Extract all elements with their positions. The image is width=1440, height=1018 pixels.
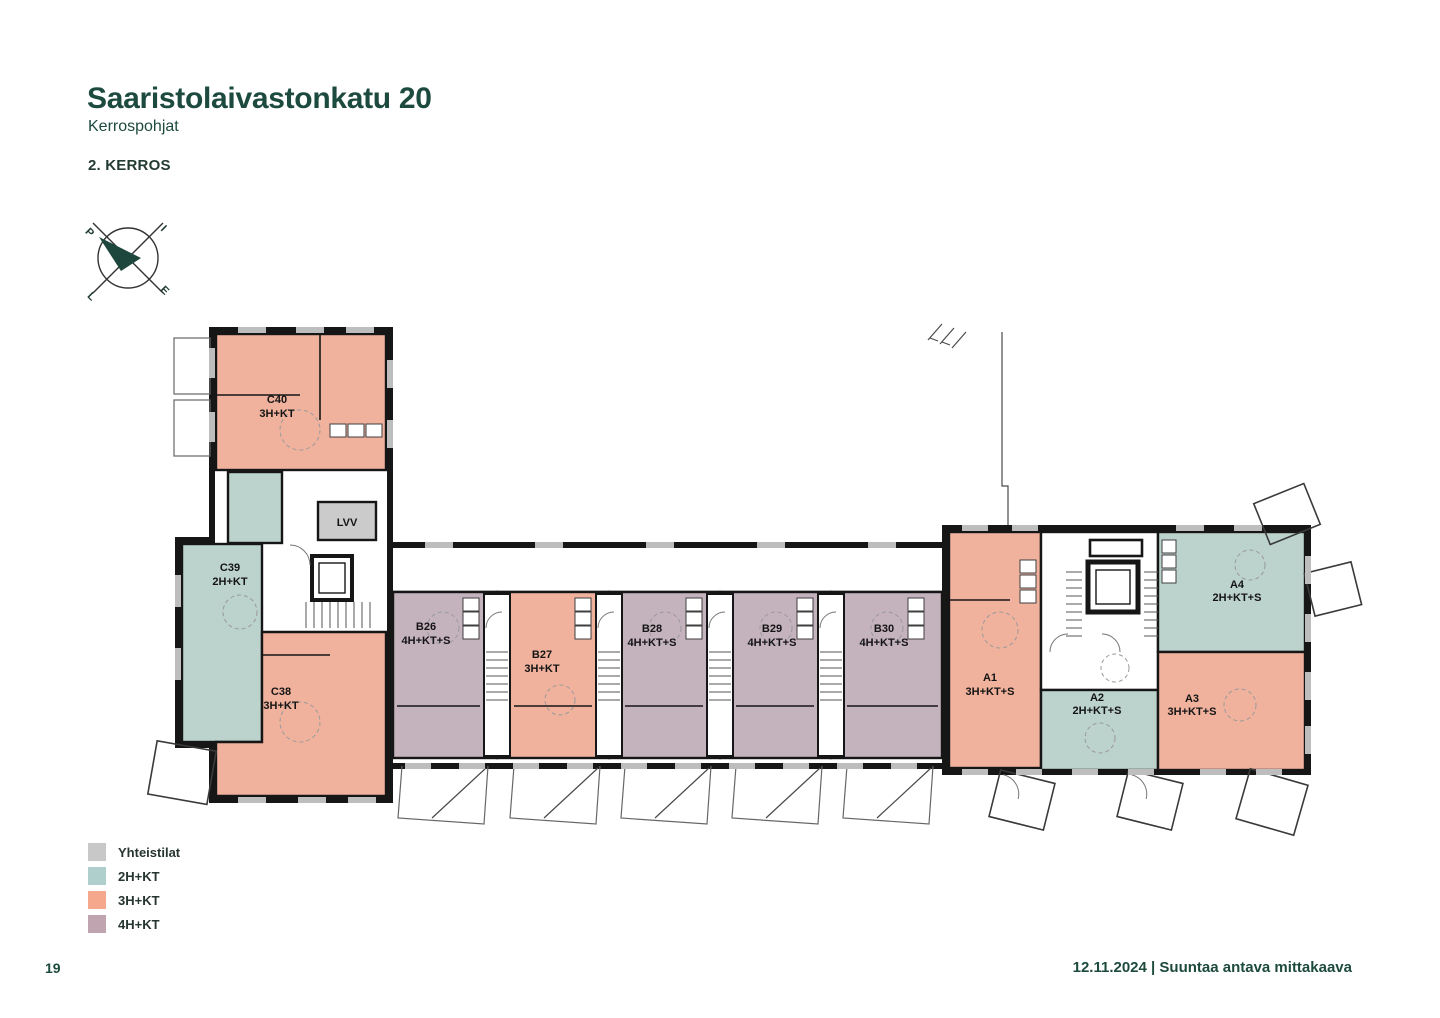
compass-east-letter: I: [158, 223, 169, 234]
unit-id-a4: A4: [1230, 579, 1245, 591]
site-boundary: [928, 324, 1008, 528]
compass-south-letter: E: [157, 284, 171, 298]
unit-type-a4: 2H+KT+S: [1213, 592, 1262, 604]
legend-item-2hkt: 2H+KT: [88, 867, 180, 885]
unit-id-b26: B26: [416, 621, 436, 633]
legend: Yhteistilat 2H+KT 3H+KT 4H+KT: [88, 843, 180, 939]
common-room-label: LVV: [337, 517, 358, 529]
unit-region-b29: [720, 592, 831, 758]
a-wing: A1 3H+KT+S A2 2H+KT+S A3 3H+KT+S A4 2H+K…: [945, 483, 1362, 835]
a-wing-vestibule: [1090, 540, 1142, 556]
unit-type-c39: 2H+KT: [212, 576, 247, 588]
unit-type-b27: 3H+KT: [524, 663, 559, 675]
legend-label-3hkt: 3H+KT: [118, 893, 160, 908]
legend-item-common: Yhteistilat: [88, 843, 180, 861]
b-wing-balconies: [398, 766, 933, 824]
a-wing-elevator: [1088, 562, 1138, 612]
unit-id-b27: B27: [532, 649, 552, 661]
unit-id-b30: B30: [874, 623, 894, 635]
c-wing-elevator: [312, 556, 352, 600]
unit-type-c38: 3H+KT: [263, 700, 298, 712]
legend-swatch-2hkt: [88, 867, 106, 885]
unit-region-b27: [497, 592, 609, 758]
legend-label-4hkt: 4H+KT: [118, 917, 160, 932]
unit-id-a2: A2: [1090, 692, 1104, 704]
unit-type-b29: 4H+KT+S: [748, 637, 797, 649]
unit-type-b26: 4H+KT+S: [402, 635, 451, 647]
unit-type-a3: 3H+KT+S: [1168, 706, 1217, 718]
legend-swatch-3hkt: [88, 891, 106, 909]
unit-id-b28: B28: [642, 623, 662, 635]
c-wing-fixtures: [330, 424, 382, 437]
compass-west-letter: L: [85, 290, 98, 303]
unit-id-a3: A3: [1185, 693, 1199, 705]
unit-type-b28: 4H+KT+S: [628, 637, 677, 649]
legend-label-common: Yhteistilat: [118, 845, 180, 860]
legend-label-2hkt: 2H+KT: [118, 869, 160, 884]
b-wing: B26 4H+KT+S B27 3H+KT B28 4H+KT+S B29 4H…: [390, 545, 945, 824]
unit-type-a2: 2H+KT+S: [1073, 705, 1122, 717]
legend-swatch-4hkt: [88, 915, 106, 933]
unit-id-c38: C38: [271, 686, 291, 698]
unit-type-b30: 4H+KT+S: [860, 637, 909, 649]
legend-item-4hkt: 4H+KT: [88, 915, 180, 933]
unit-type-a1: 3H+KT+S: [966, 686, 1015, 698]
legend-swatch-common: [88, 843, 106, 861]
page-number: 19: [45, 960, 61, 976]
unit-region-b28: [609, 592, 720, 758]
unit-region-b26: [393, 592, 497, 758]
footer-note: 12.11.2024 | Suuntaa antava mittakaava: [1073, 959, 1352, 976]
legend-item-3hkt: 3H+KT: [88, 891, 180, 909]
compass-north-letter: P: [82, 226, 96, 240]
unit-id-b29: B29: [762, 623, 782, 635]
floor-plan: P I E L LVV: [0, 0, 1440, 1018]
unit-region-b30: [831, 592, 942, 758]
north-arrow-icon: [99, 237, 141, 271]
unit-type-c40: 3H+KT: [259, 408, 294, 420]
compass-rose: P I E L: [82, 223, 171, 304]
unit-id-c40: C40: [267, 394, 287, 406]
unit-id-a1: A1: [983, 672, 997, 684]
c-wing: LVV C40 3H+KT C39 2H+KT C38 3H+KT: [148, 330, 390, 804]
unit-id-c39: C39: [220, 562, 240, 574]
unit-region-c39-upper: [228, 472, 282, 543]
